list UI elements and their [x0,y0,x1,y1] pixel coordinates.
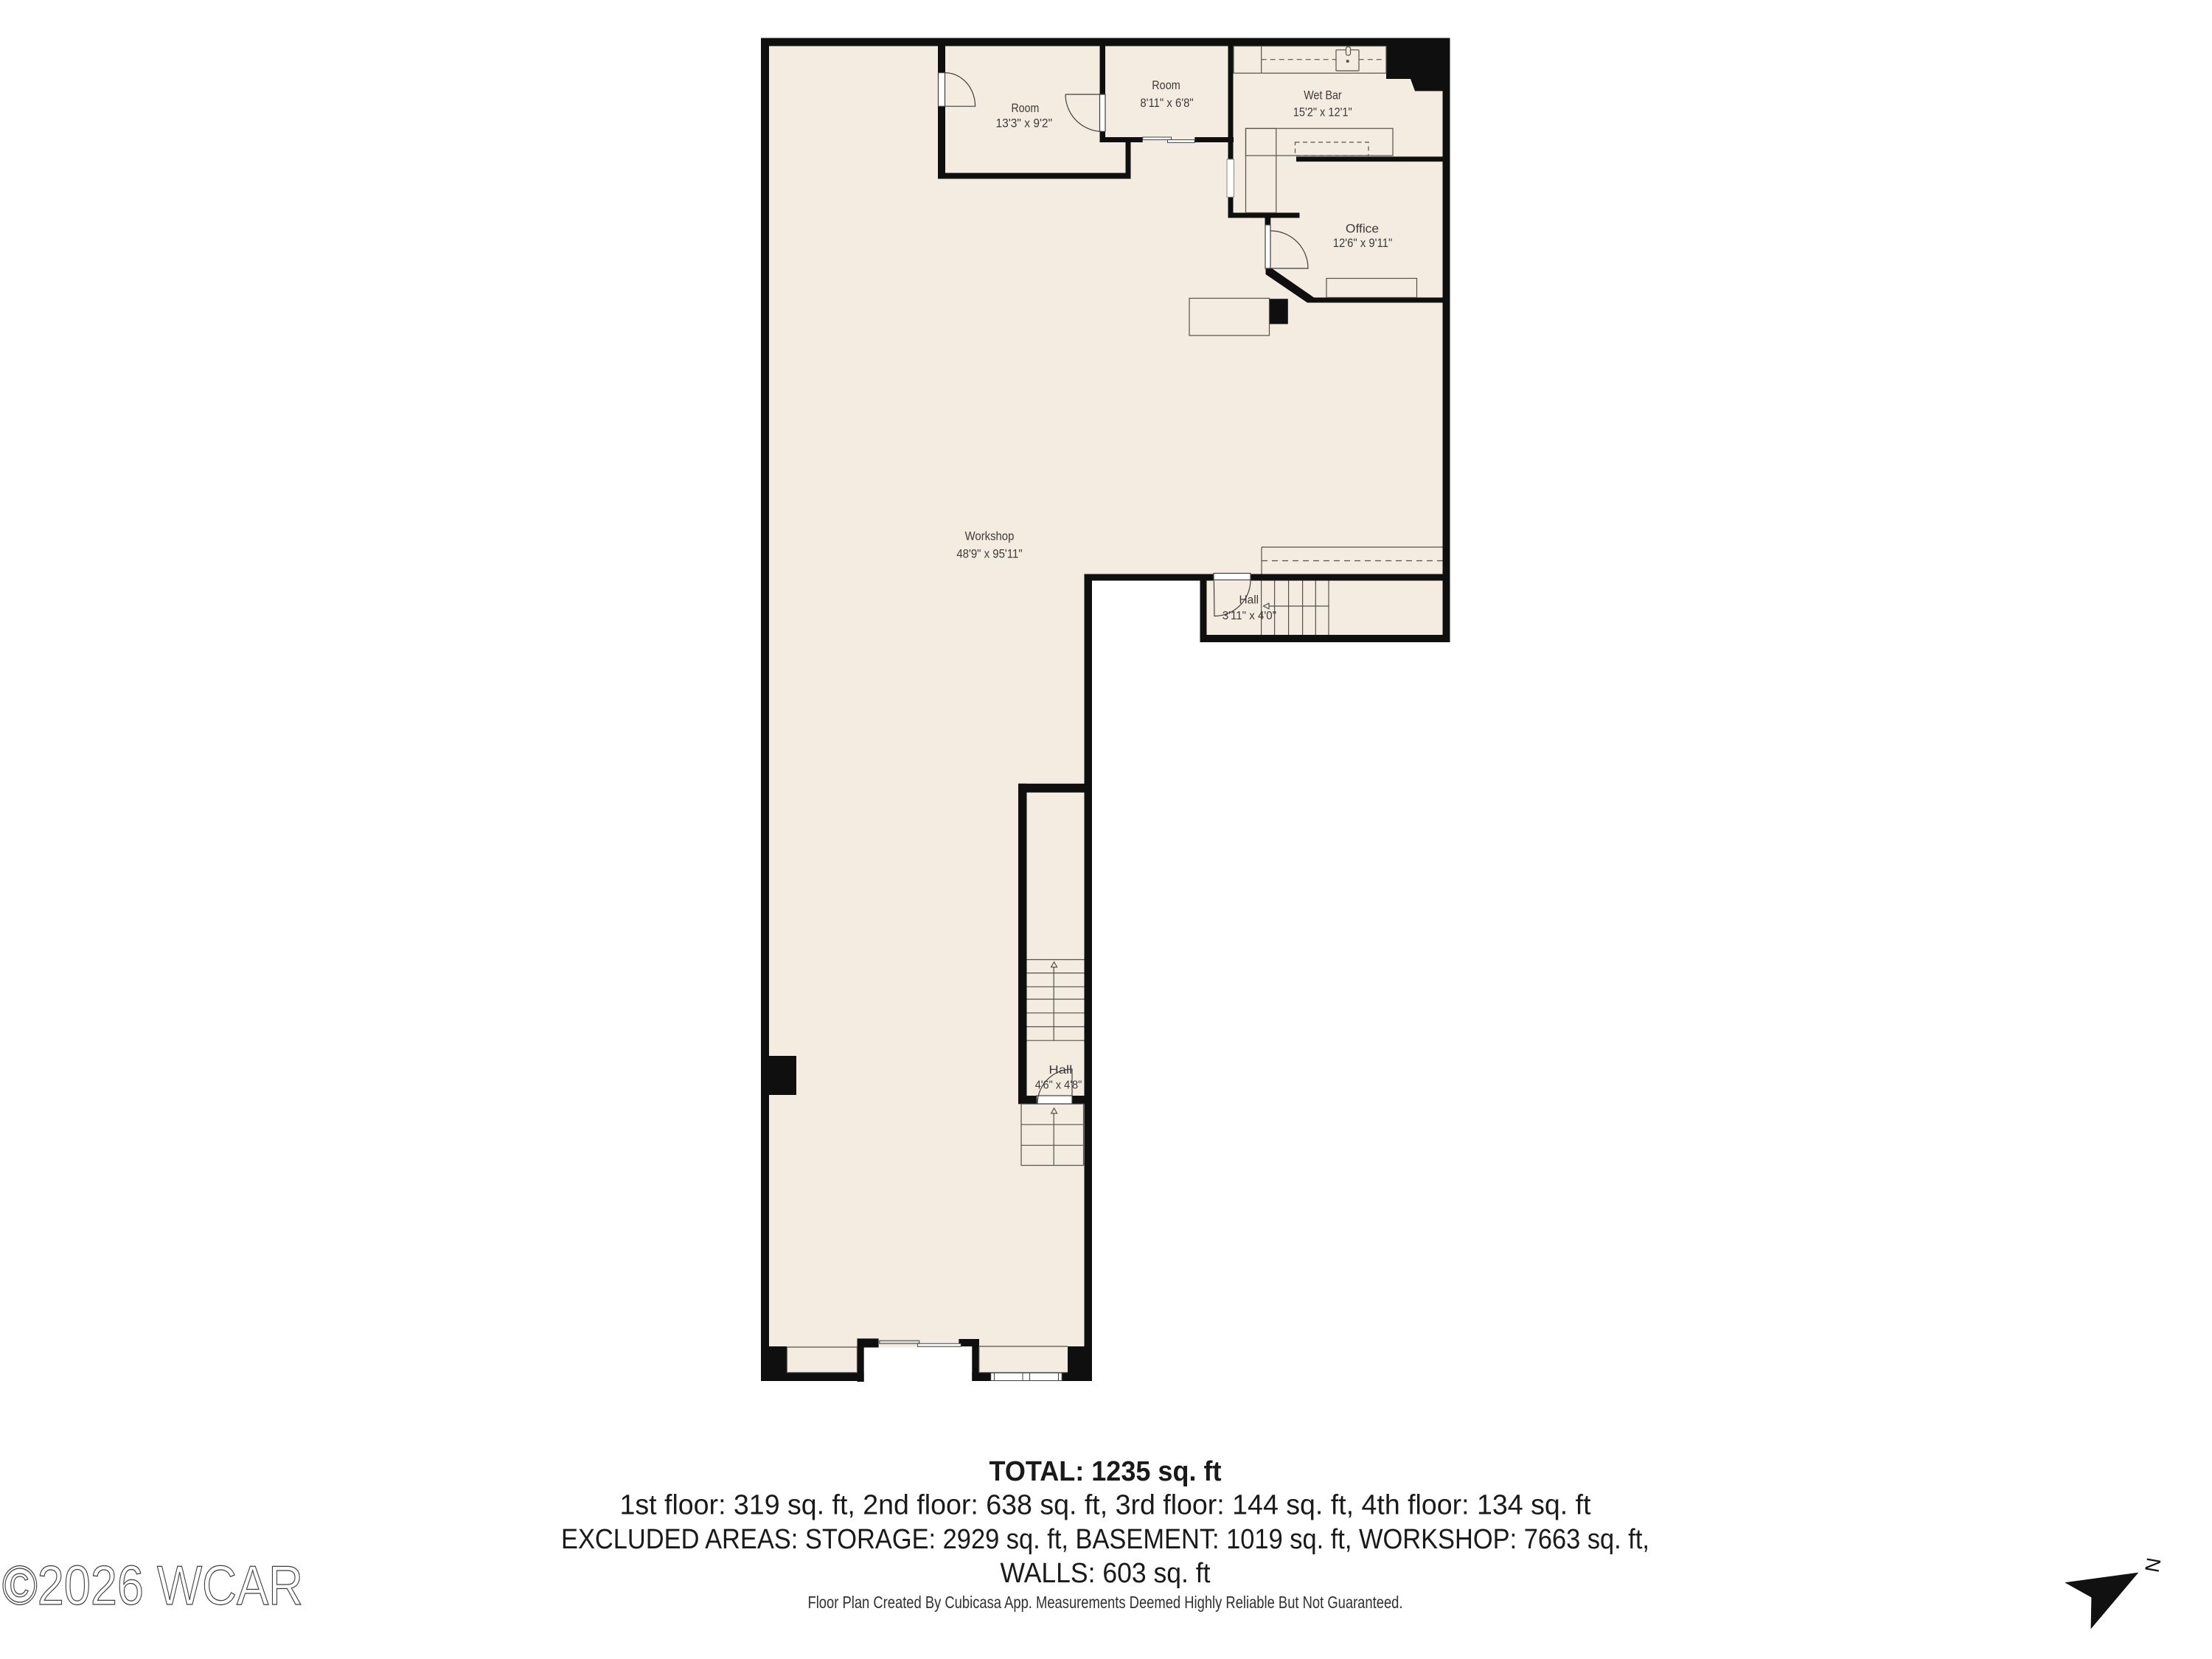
svg-text:©2026 WCAR: ©2026 WCAR [2,1554,303,1616]
svg-text:N: N [2140,1556,2165,1573]
svg-text:15'2" x 12'1": 15'2" x 12'1" [1293,105,1352,119]
svg-text:13'3" x 9'2": 13'3" x 9'2" [996,116,1053,131]
svg-text:Workshop: Workshop [965,529,1015,543]
svg-text:48'9" x 95'11": 48'9" x 95'11" [956,547,1022,561]
svg-text:12'6" x 9'11": 12'6" x 9'11" [1333,236,1393,250]
svg-text:WALLS: 603 sq. ft: WALLS: 603 sq. ft [1001,1558,1211,1589]
svg-text:Wet Bar: Wet Bar [1304,88,1342,102]
svg-text:TOTAL: 1235 sq. ft: TOTAL: 1235 sq. ft [990,1456,1222,1487]
svg-text:4'6" x 4'8": 4'6" x 4'8" [1035,1079,1082,1092]
svg-text:Hall: Hall [1048,1064,1072,1077]
svg-text:Room: Room [1012,101,1040,115]
svg-text:Office: Office [1346,222,1379,236]
svg-text:Hall: Hall [1239,594,1259,607]
svg-text:3'11" x 4'0": 3'11" x 4'0" [1222,610,1276,622]
svg-text:8'11" x 6'8": 8'11" x 6'8" [1140,96,1193,110]
svg-text:1st floor: 319 sq. ft, 2nd flo: 1st floor: 319 sq. ft, 2nd floor: 638 sq… [620,1490,1591,1521]
svg-text:EXCLUDED AREAS: STORAGE: 2929: EXCLUDED AREAS: STORAGE: 2929 sq. ft, BA… [561,1524,1649,1555]
svg-text:Room: Room [1152,78,1180,92]
svg-text:Floor Plan Created By Cubicasa: Floor Plan Created By Cubicasa App. Meas… [808,1593,1403,1612]
